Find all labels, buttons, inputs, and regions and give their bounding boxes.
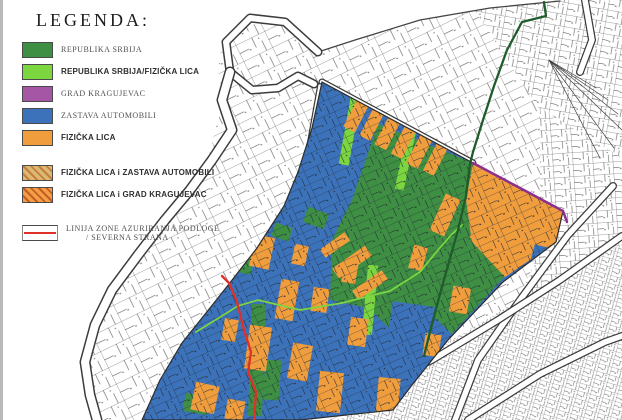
legend-item-1: REPUBLIKA SRBIJA <box>22 41 260 58</box>
legend-item-8: LINIJA ZONE AZURIRANJA PODLOGE/ SEVERNA … <box>22 224 260 241</box>
page-edge-divider <box>0 0 3 420</box>
legend-label: LINIJA ZONE AZURIRANJA PODLOGE/ SEVERNA … <box>66 224 219 242</box>
legend-swatch <box>22 42 53 58</box>
legend-item-2: REPUBLIKA SRBIJA/FIZIČKA LICA <box>22 63 260 80</box>
legend-label: ZASTAVA AUTOMOBILI <box>61 111 156 120</box>
legend-label: GRAD KRAGUJEVAC <box>61 89 145 98</box>
legend-swatch <box>22 130 53 146</box>
red-line-symbol <box>24 232 56 234</box>
legend-label: REPUBLIKA SRBIJA/FIZIČKA LICA <box>61 67 199 76</box>
legend-label: FIZIČKA LICA i ZASTAVA AUTOMOBILI <box>61 168 214 177</box>
legend-swatch <box>22 108 53 124</box>
legend-title: LEGENDA: <box>36 10 260 31</box>
legend-items: REPUBLIKA SRBIJAREPUBLIKA SRBIJA/FIZIČKA… <box>22 41 260 241</box>
legend-swatch <box>22 86 53 102</box>
legend-label: REPUBLIKA SRBIJA <box>61 45 142 54</box>
legend-swatch <box>22 225 58 241</box>
legend-panel: LEGENDA: REPUBLIKA SRBIJAREPUBLIKA SRBIJ… <box>22 6 260 246</box>
legend-swatch <box>22 187 53 203</box>
legend-item-6: FIZIČKA LICA i ZASTAVA AUTOMOBILI <box>22 164 260 181</box>
legend-label: FIZIČKA LICA <box>61 133 116 142</box>
legend-swatch <box>22 64 53 80</box>
legend-label: FIZIČKA LICA i GRAD KRAGUJEVAC <box>61 190 207 199</box>
map-page: LEGENDA: REPUBLIKA SRBIJAREPUBLIKA SRBIJ… <box>0 0 622 420</box>
legend-item-7: FIZIČKA LICA i GRAD KRAGUJEVAC <box>22 186 260 203</box>
legend-item-5: FIZIČKA LICA <box>22 129 260 146</box>
legend-item-4: ZASTAVA AUTOMOBILI <box>22 107 260 124</box>
legend-item-3: GRAD KRAGUJEVAC <box>22 85 260 102</box>
legend-label-line2: / SEVERNA STRANA <box>66 233 219 242</box>
legend-swatch <box>22 165 53 181</box>
